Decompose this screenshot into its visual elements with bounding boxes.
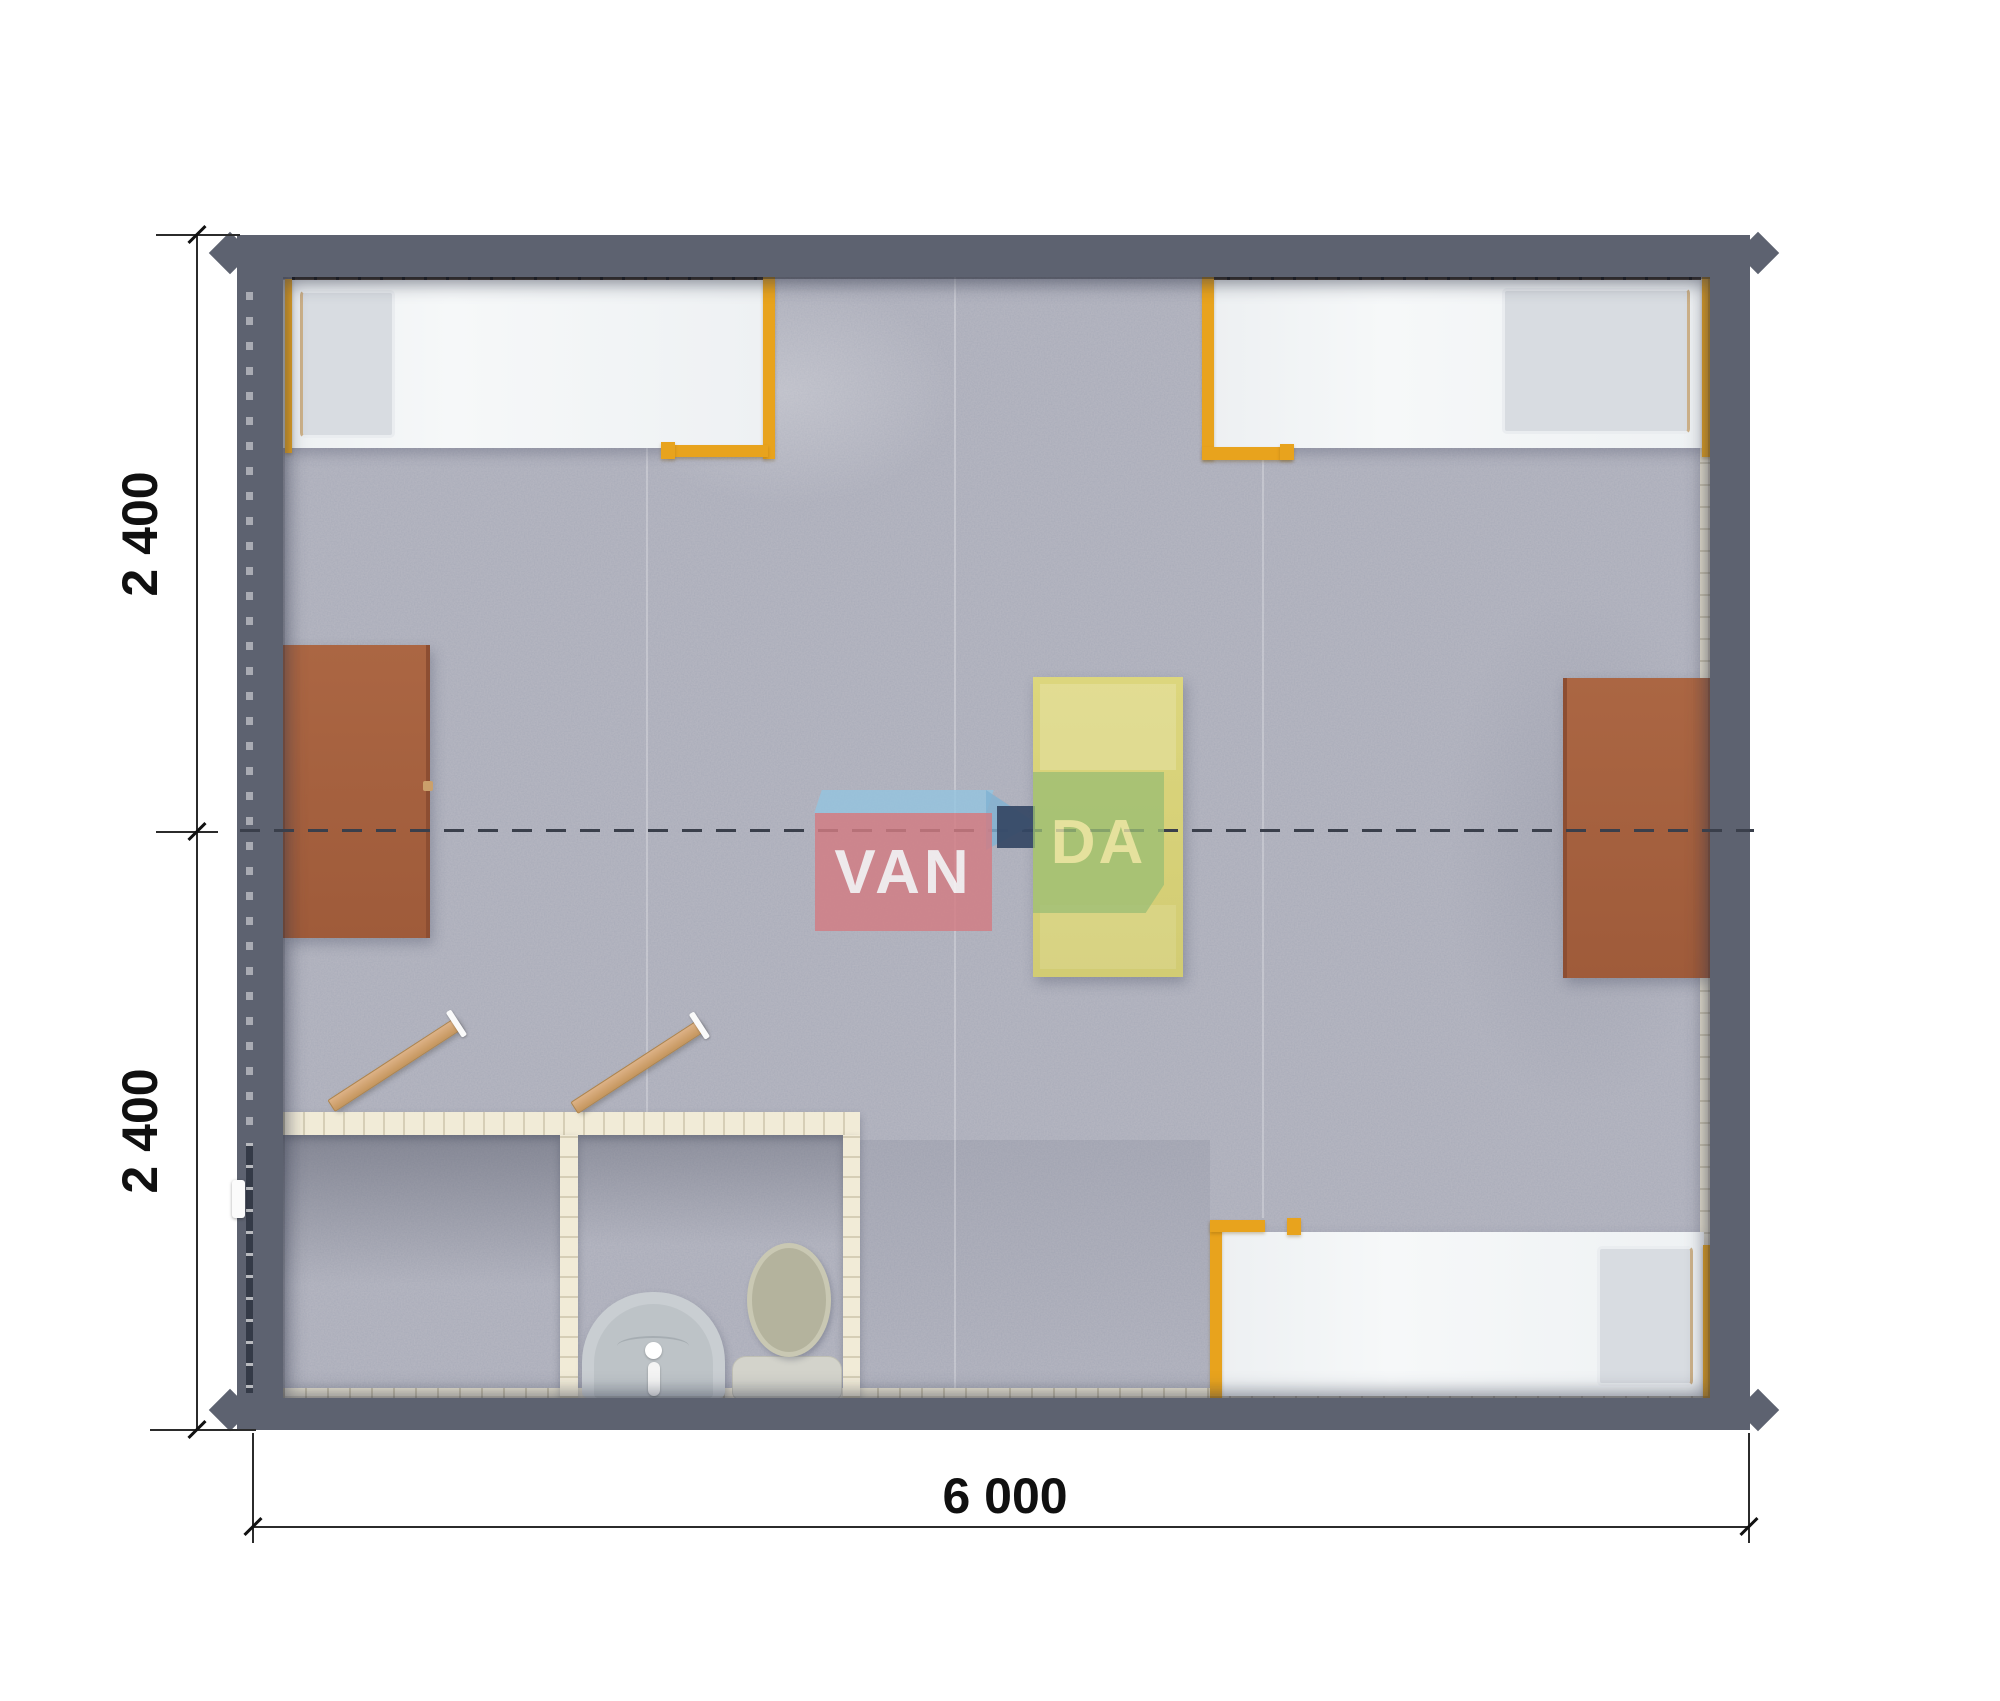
watermark-vanda-red: VAN [815,813,992,931]
dim-ext-bottom [150,1429,256,1431]
dim-label-module-bottom: 2 400 [112,1031,168,1231]
watermark-text-da: DA [1051,807,1147,878]
watermark-text-van: VAN [834,837,972,908]
floor-plan: VAN DA 2 400 2 400 6 000 [0,0,2000,1701]
dim-ext-middle [156,831,218,833]
left-wall-cladding [246,292,253,1137]
watermark-vanda-green: DA [1033,772,1164,913]
dim-label-total-width: 6 000 [905,1468,1105,1524]
dim-bottom-line [253,1526,1749,1528]
exterior-door-handle [232,1180,245,1218]
watermark-box-top [814,790,993,813]
dim-label-module-top: 2 400 [112,434,168,634]
exterior-door-seal [246,1143,253,1393]
watermark-box-navy [997,806,1035,848]
